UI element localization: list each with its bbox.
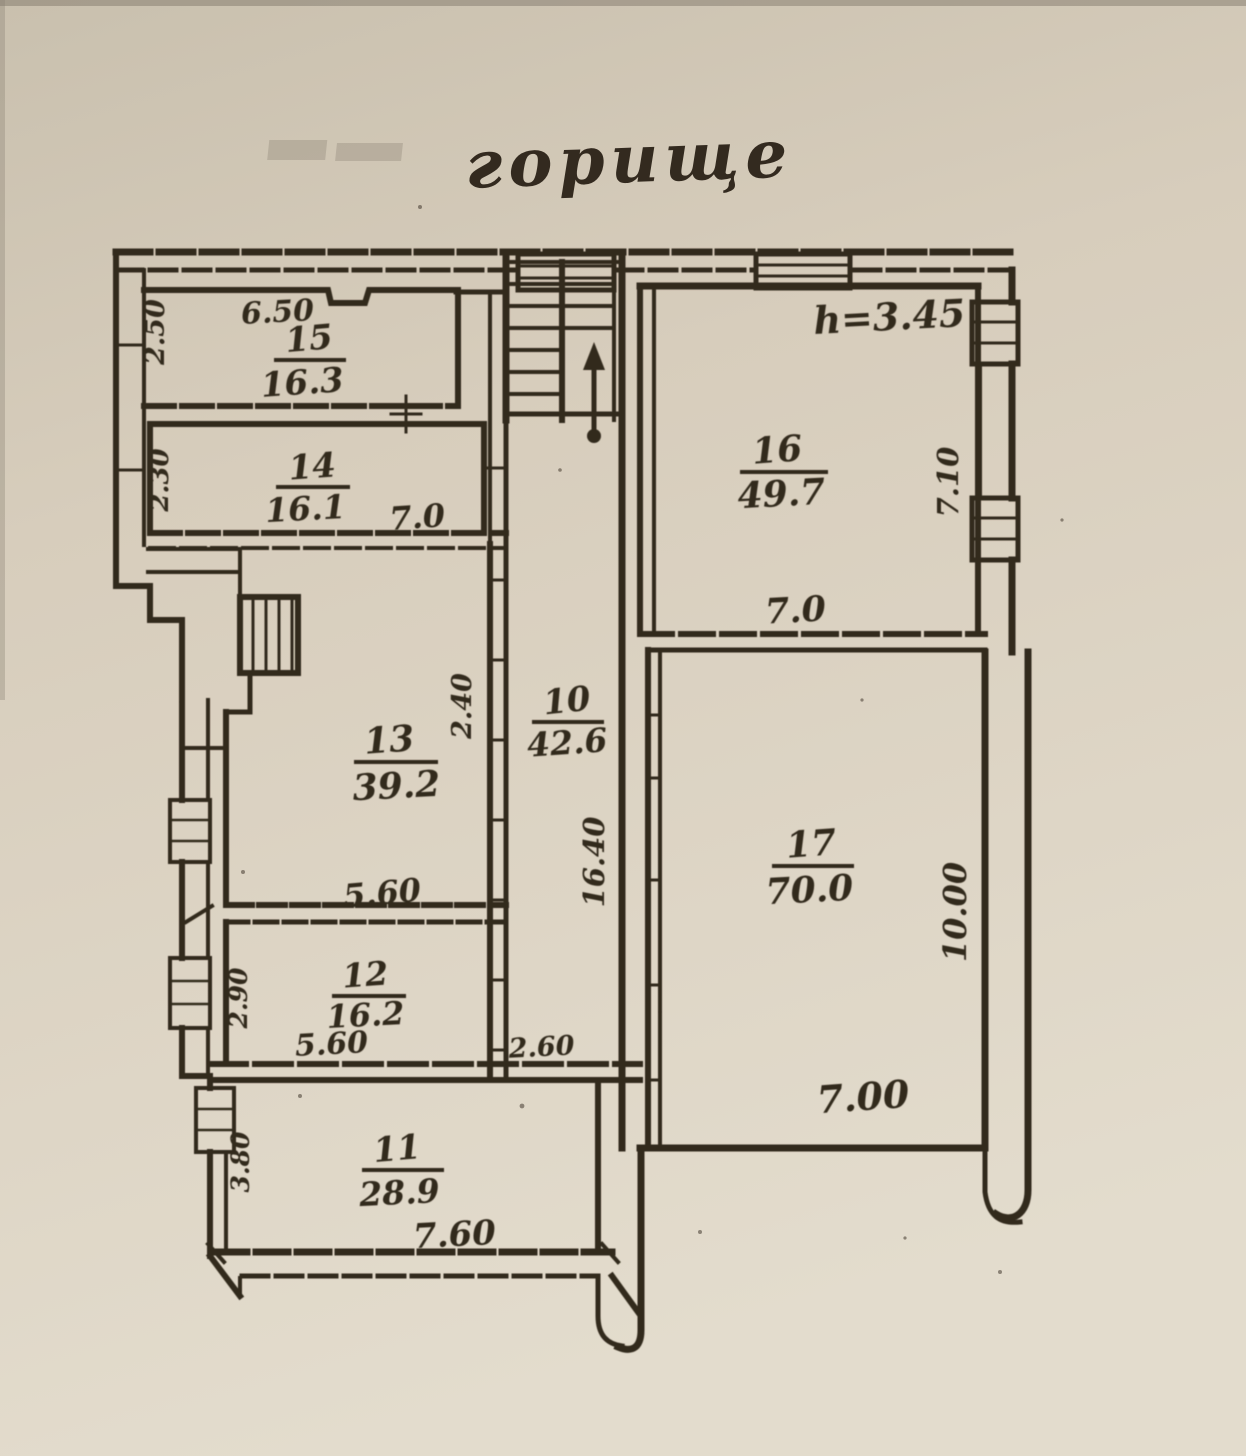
dimension-label: 2.30 bbox=[145, 448, 175, 512]
dimension-label: 3.80 bbox=[226, 1131, 255, 1192]
scanned-floor-plan-page: горище bbox=[0, 0, 1246, 1456]
page-title: горище bbox=[464, 114, 795, 203]
room-area: 39.2 bbox=[351, 763, 441, 810]
dimension-label: 10.00 bbox=[936, 862, 974, 962]
room-area: 49.7 bbox=[736, 471, 826, 518]
room-number: 10 bbox=[541, 679, 593, 724]
room-number: 12 bbox=[341, 953, 390, 995]
dimension-label: 7.0 bbox=[388, 496, 446, 538]
ceiling-height-note: h=3.45 bbox=[812, 290, 966, 343]
room-area: 28.9 bbox=[357, 1171, 440, 1214]
dimension-label: 16.40 bbox=[577, 817, 611, 908]
dimension-label: 2.60 bbox=[507, 1030, 576, 1064]
room-area: 70.0 bbox=[764, 867, 854, 914]
room-number: 15 bbox=[284, 317, 335, 361]
room-area: 16.3 bbox=[260, 360, 345, 406]
floor-plan-drawing: горище bbox=[0, 0, 1246, 1456]
room-number: 13 bbox=[363, 717, 416, 762]
room-number: 16 bbox=[751, 427, 804, 472]
dimension-label: 7.0 bbox=[764, 588, 827, 632]
dimension-label: 7.60 bbox=[412, 1213, 497, 1257]
dimension-label: 2.50 bbox=[140, 299, 171, 366]
dimension-label: 5.60 bbox=[294, 1025, 369, 1064]
dimension-label: 2.90 bbox=[224, 967, 253, 1029]
room-number: 14 bbox=[287, 445, 337, 488]
room-number: 17 bbox=[785, 821, 838, 866]
dimension-label: 7.10 bbox=[931, 447, 965, 518]
dimension-label: 5.60 bbox=[342, 871, 423, 916]
room-number: 11 bbox=[372, 1127, 423, 1171]
room-area: 16.1 bbox=[264, 487, 346, 530]
dimension-label: 2.40 bbox=[447, 673, 478, 740]
room-area: 42.6 bbox=[526, 720, 609, 765]
dimension-label: 7.00 bbox=[815, 1071, 911, 1122]
